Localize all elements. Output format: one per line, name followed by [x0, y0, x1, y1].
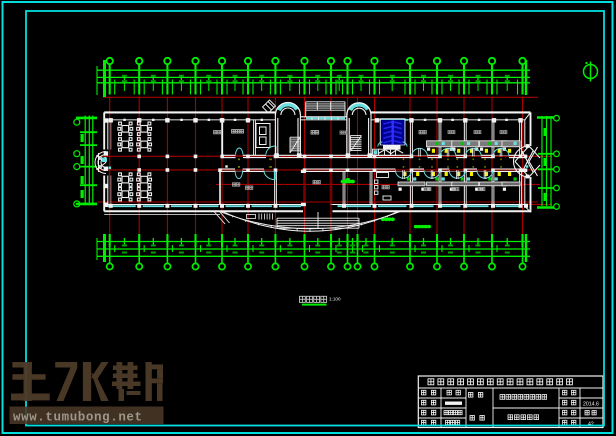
svg-text:1:100: 1:100 — [329, 297, 341, 302]
svg-text:2014.6: 2014.6 — [583, 401, 599, 407]
svg-text:www.tumubong.net: www.tumubong.net — [13, 411, 143, 425]
